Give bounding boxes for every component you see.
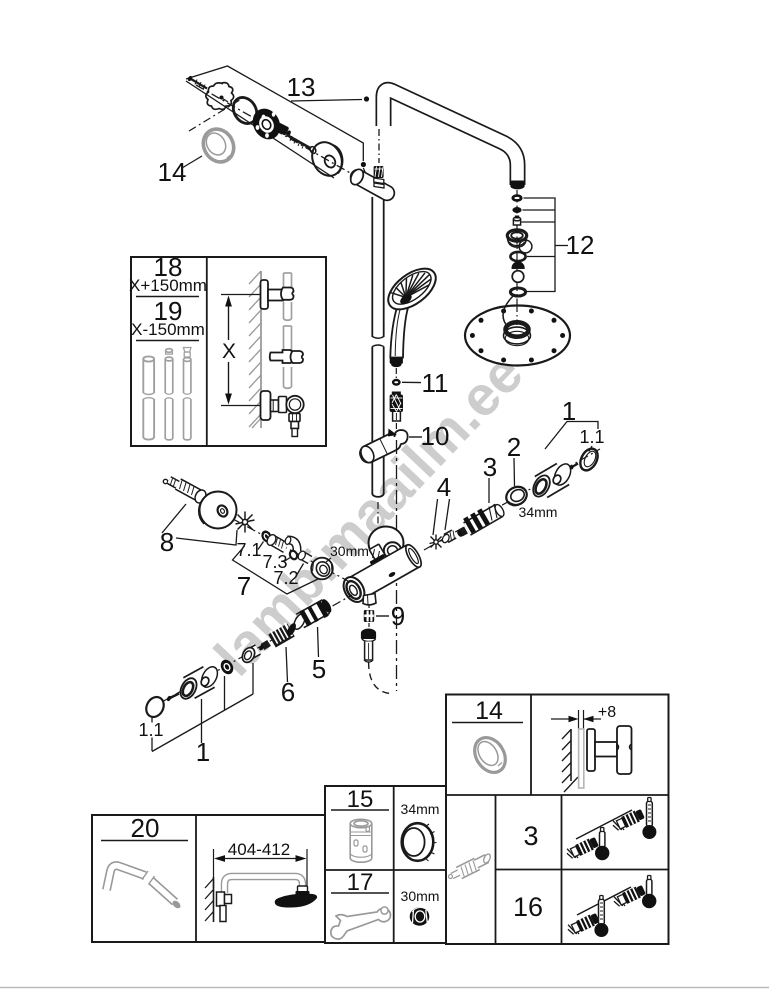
- svg-text:13: 13: [287, 72, 316, 102]
- svg-text:17: 17: [347, 869, 374, 896]
- svg-text:15: 15: [347, 786, 374, 813]
- svg-text:11: 11: [422, 368, 449, 398]
- svg-text:34mm: 34mm: [401, 801, 440, 817]
- svg-text:1: 1: [196, 737, 210, 767]
- svg-text:3: 3: [523, 821, 538, 851]
- svg-text:5: 5: [312, 654, 326, 684]
- svg-text:X: X: [222, 340, 236, 363]
- svg-text:14: 14: [158, 157, 187, 187]
- svg-text:6: 6: [281, 677, 295, 707]
- svg-text:30mm: 30mm: [401, 888, 440, 904]
- svg-text:7.2: 7.2: [273, 568, 298, 588]
- svg-text:8: 8: [160, 527, 174, 557]
- svg-text:404-412: 404-412: [228, 840, 290, 859]
- svg-text:3: 3: [483, 452, 497, 482]
- svg-text:10: 10: [421, 421, 450, 451]
- svg-text:2: 2: [507, 432, 521, 462]
- svg-text:30mm: 30mm: [330, 543, 369, 559]
- svg-text:4: 4: [437, 472, 451, 502]
- svg-text:1.1: 1.1: [138, 720, 163, 740]
- svg-text:14: 14: [475, 697, 503, 725]
- svg-text:9: 9: [391, 601, 405, 631]
- svg-text:7: 7: [237, 571, 251, 601]
- svg-text:34mm: 34mm: [519, 504, 558, 520]
- svg-text:20: 20: [131, 813, 160, 843]
- svg-text:X-150mm: X-150mm: [131, 320, 205, 339]
- svg-text:X+150mm: X+150mm: [129, 276, 207, 295]
- svg-text:1.1: 1.1: [579, 427, 604, 447]
- svg-text:12: 12: [566, 230, 595, 260]
- svg-text:16: 16: [513, 892, 543, 922]
